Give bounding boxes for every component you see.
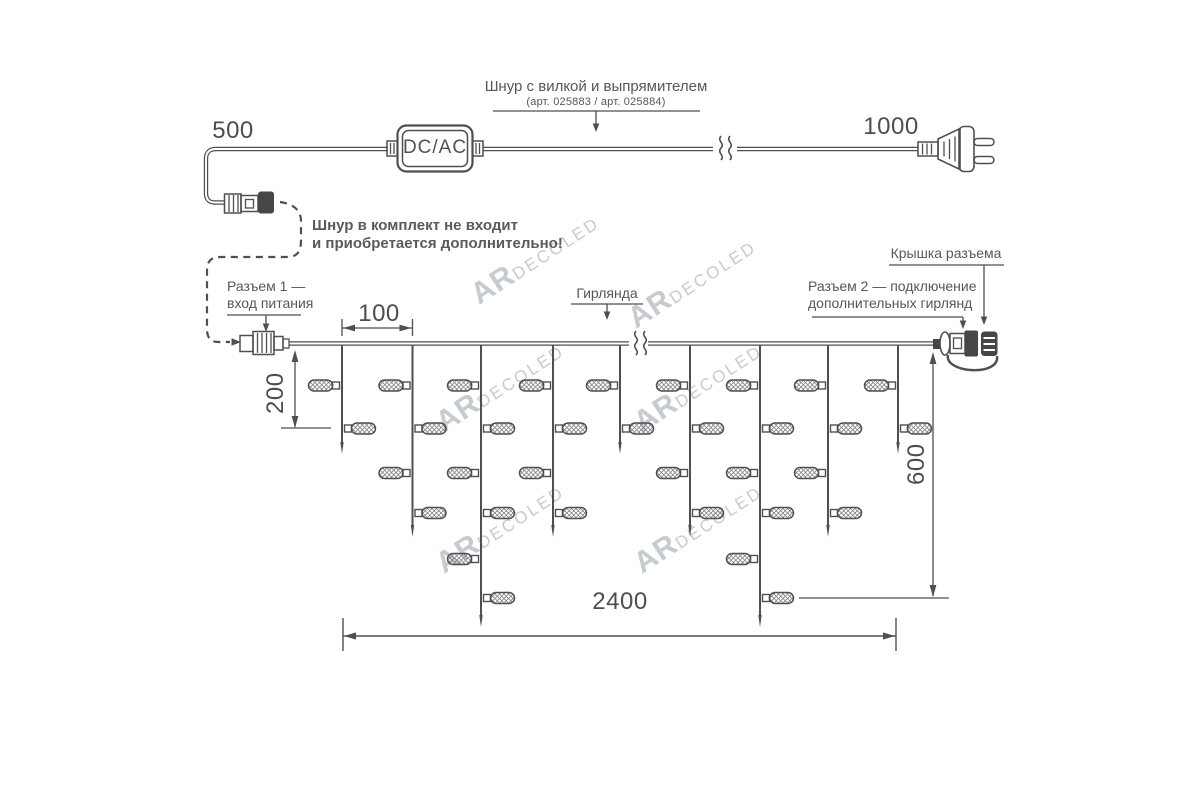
dim-1000-label: 1000 [860, 113, 922, 141]
bulb-body [657, 468, 681, 479]
bulb-body [770, 508, 794, 519]
bulb-body [422, 423, 446, 434]
garland-drop [309, 345, 376, 454]
cord-label: Шнур с вилкой и выпрямителем [446, 78, 746, 96]
dim-2400-label: 2400 [585, 588, 655, 616]
led-bulb-icon [484, 423, 515, 434]
converter-right-nub [473, 141, 484, 156]
mains-plug-icon [918, 127, 994, 172]
led-bulb-icon [693, 508, 724, 519]
drop-tip [758, 615, 761, 627]
led-bulb-icon [795, 380, 826, 391]
converter-label: DC/AC [400, 137, 470, 159]
led-bulb-icon [448, 380, 479, 391]
led-bulb-icon [727, 554, 758, 565]
dim-200-label: 200 [262, 363, 290, 423]
dim-2400-total-length [343, 618, 896, 651]
garland-drop [448, 345, 515, 627]
bulb-body [520, 380, 544, 391]
led-bulb-icon [623, 423, 654, 434]
garland-drop [379, 345, 446, 537]
bulb-body [379, 380, 403, 391]
drop-tip [551, 525, 554, 537]
bulb-body [908, 423, 932, 434]
drop-tip [340, 442, 343, 454]
bulb-body [422, 508, 446, 519]
garland-drop [657, 345, 724, 537]
led-bulb-icon [657, 468, 688, 479]
diagram-linework [0, 0, 1200, 800]
note-line2: и приобретается дополнительно! [312, 235, 563, 253]
bulb-body [865, 380, 889, 391]
connector2-label-line1: Разъем 2 — подключение [808, 278, 968, 295]
cord-break-icon [713, 136, 737, 160]
led-bulb-icon [763, 508, 794, 519]
led-bulb-icon [763, 423, 794, 434]
bulb-body [630, 423, 654, 434]
bulb-body [491, 508, 515, 519]
led-bulb-icon [556, 508, 587, 519]
drop-tip [479, 615, 482, 627]
led-bulb-icon [484, 508, 515, 519]
bulb-body [795, 468, 819, 479]
cord-end-connector [225, 192, 275, 214]
led-bulb-icon [415, 423, 446, 434]
garland-drop [795, 345, 862, 537]
garland-drop [727, 345, 794, 627]
led-bulb-icon [657, 380, 688, 391]
bulb-body [700, 508, 724, 519]
bulb-body [309, 380, 333, 391]
garland-break-icon [629, 331, 648, 355]
power-cord-wire [206, 136, 918, 203]
converter-left-nub [387, 141, 398, 156]
bulb-body [520, 468, 544, 479]
led-bulb-icon [693, 423, 724, 434]
led-bulb-icon [763, 593, 794, 604]
led-bulb-icon [448, 468, 479, 479]
led-bulb-icon [345, 423, 376, 434]
led-bulb-icon [415, 508, 446, 519]
bulb-body [727, 380, 751, 391]
bulb-body [838, 508, 862, 519]
led-bulb-icon [587, 380, 618, 391]
led-bulb-icon [727, 380, 758, 391]
plug-pin [974, 139, 994, 146]
dim-100-label: 100 [347, 300, 411, 328]
led-bulb-icon [901, 423, 932, 434]
garland-drop [587, 345, 654, 454]
bulb-body [448, 554, 472, 565]
connector1-label-leader [227, 315, 301, 332]
connector-cap-icon [981, 332, 998, 357]
drop-tip [826, 525, 829, 537]
cord-connector-cap [258, 192, 274, 214]
drop-tip [896, 442, 899, 454]
bulb-body [587, 380, 611, 391]
cord-label-leader [493, 111, 700, 132]
garland-dimension-diagram: ARDECOLEDARDECOLEDARDECOLEDARDECOLEDARDE… [0, 0, 1200, 800]
drop-tip [411, 525, 414, 537]
cap-label: Крышка разъема [886, 245, 1006, 262]
bulb-body [657, 380, 681, 391]
cord-art-numbers: (арт. 025883 / арт. 025884) [446, 96, 746, 109]
led-bulb-icon [484, 593, 515, 604]
icicle-drops [309, 345, 932, 627]
bulb-body [352, 423, 376, 434]
bulb-body [491, 593, 515, 604]
connector2-body [965, 331, 979, 357]
bulb-body [448, 468, 472, 479]
dashed-cord-path [207, 202, 301, 346]
bulb-body [563, 508, 587, 519]
bulb-body [727, 554, 751, 565]
garland-label-leader [571, 304, 643, 320]
bulb-body [379, 468, 403, 479]
led-bulb-icon [520, 380, 551, 391]
led-bulb-icon [379, 468, 410, 479]
garland-wire [289, 331, 934, 355]
led-bulb-icon [831, 423, 862, 434]
bulb-body [838, 423, 862, 434]
plug-pin [974, 157, 994, 164]
bulb-body [448, 380, 472, 391]
connector1-label-line1: Разъем 1 — [227, 278, 305, 295]
drop-tip [618, 442, 621, 454]
garland-label: Гирлянда [567, 285, 647, 302]
dim-500-label: 500 [203, 117, 263, 145]
cap-tether [948, 355, 997, 370]
note-line1: Шнур в комплект не входит [312, 217, 518, 235]
led-bulb-icon [309, 380, 340, 391]
led-bulb-icon [865, 380, 896, 391]
bulb-body [491, 423, 515, 434]
led-bulb-icon [831, 508, 862, 519]
led-bulb-icon [448, 554, 479, 565]
bulb-body [700, 423, 724, 434]
connector2-and-cap [933, 331, 998, 371]
bulb-body [770, 593, 794, 604]
led-bulb-icon [556, 423, 587, 434]
led-bulb-icon [727, 468, 758, 479]
bulb-body [563, 423, 587, 434]
led-bulb-icon [795, 468, 826, 479]
bulb-body [795, 380, 819, 391]
connector1-power-input [240, 332, 289, 355]
connector1-label-line2: вход питания [227, 295, 313, 312]
led-bulb-icon [520, 468, 551, 479]
connector2-label-line2: дополнительных гирлянд [808, 295, 968, 312]
drop-tip [688, 525, 691, 537]
dim-600-label: 600 [903, 434, 931, 494]
led-bulb-icon [379, 380, 410, 391]
garland-drop [520, 345, 587, 537]
connector2-label-leader [812, 317, 966, 329]
bulb-body [727, 468, 751, 479]
bulb-body [770, 423, 794, 434]
